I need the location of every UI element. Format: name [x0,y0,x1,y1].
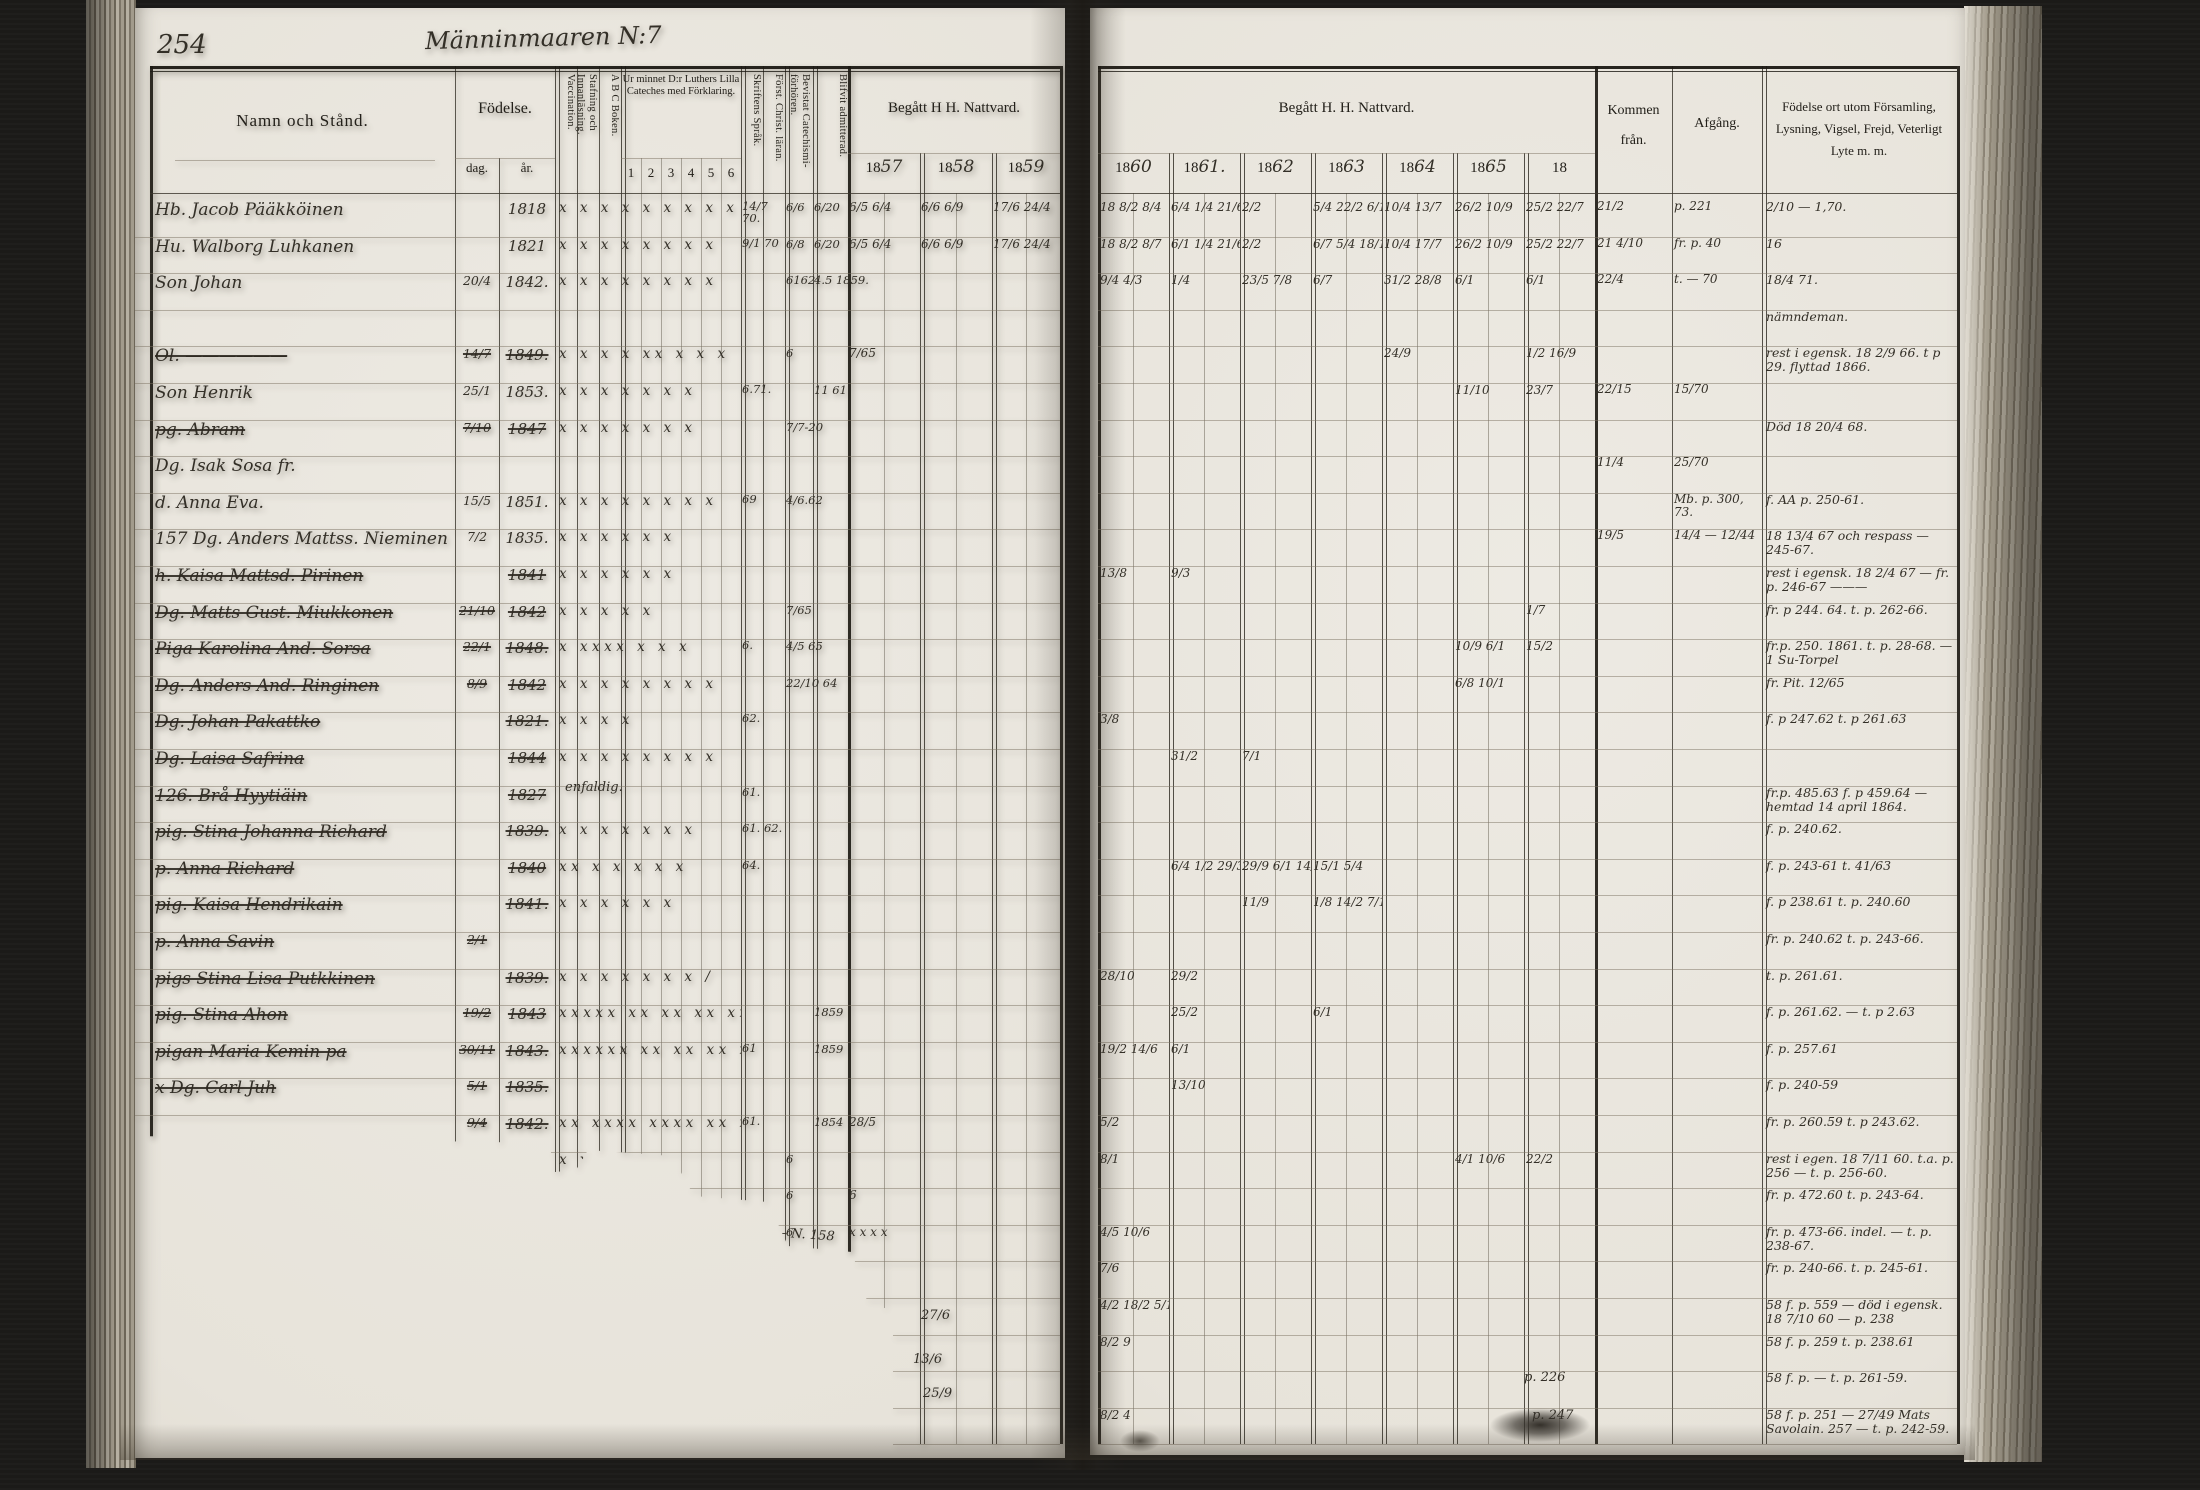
entry-check-marks: x x x x x x x x [559,676,741,692]
cateches-col-6: 6 [721,165,741,181]
col-header-blifvit-admitterad: Blifvit admitterad. [815,74,848,192]
register-row-right: 28/10 29/2 t. p. 261.61. [1090,969,1965,1006]
entry-birth-day: 2/1 [455,932,499,947]
entry-note: f. p. 240.62. [1766,822,1956,836]
year-written: 61. [1198,157,1225,177]
entry-name: 157 Dg. Anders Mattss. Nieminen ibf. [155,529,453,549]
entry-skriftens-mark: 6. [742,639,784,651]
entry-skriftens-mark: 64. [742,859,784,871]
year-printed: 18 [1552,160,1567,176]
entry-nattvard-1860: 19/2 14/6 [1100,1042,1169,1056]
cateches-col-4: 4 [681,165,701,181]
entry-check-marks: x x x x x x x x [559,493,741,509]
register-row-right: Mb. p. 300, 73. f. AA p. 250-61. [1090,493,1965,530]
year-18-blank: 18 [1524,157,1595,177]
year-1863: 1863 [1311,157,1382,177]
register-row-right: 19/2 14/6 6/1 f. p. 257.61 [1090,1042,1965,1079]
entry-check-marks: xx xxxx xxxx xx xxx [559,1115,741,1131]
col-header-nattvard-right: Begått H. H. Nattvard. [1098,100,1595,117]
entry-skriftens-mark: 62. [742,712,784,724]
col-header-fodelseort-notes: Födelse ort utom Församling, Lysning, Vi… [1764,96,1954,162]
entry-birth-day: 20/4 [455,273,499,288]
entry-afgang: 15/70 [1674,383,1760,396]
register-row: p. Anna Richard 1840 xx x x x x x 64. [135,859,1065,896]
entry-nattvard-1861: 6/1 1/4 21/6 [1171,237,1240,251]
entry-birth-day: 19/2 [455,1005,499,1020]
year-1864: 1864 [1382,157,1453,177]
entry-check-marks: x x x x x x x x [559,273,741,289]
register-row: pig. Stina Ahon 19/2 1843 xxxxx xx xx xx… [135,1005,1065,1042]
entry-nattvard-1861: 13/10 [1171,1078,1240,1092]
entry-nattvard-1862: 23/5 7/8 [1242,273,1311,287]
entry-nattvard-1860: 9/4 4/3 [1100,273,1169,287]
entry-nattvard-1861: 6/4 1/4 21/6 [1171,200,1240,214]
entry-kommen-fran: 22/15 [1597,383,1671,396]
entry-note: fr. p. 240.62 t. p. 243-66. [1766,932,1956,946]
entry-bevistat-mark: 6/6 [786,200,813,214]
entry-skriftens-mark: 61. 62. [742,822,784,834]
year-written: 62 [1272,157,1294,177]
entry-skriftens-mark: 9/1 70 [742,237,784,249]
entry-nattvard-1857: 7/65 [849,346,919,360]
left-page: 254 Männinmaaren N:7 Namn och Stånd. Föd… [135,8,1065,1458]
register-row-right: 8/1 4/1 10/6 22/2 rest i egen. 18 7/11 6… [1090,1152,1965,1189]
entry-birth-year: 1839. [499,969,555,987]
entry-name: pigan Maria Kemin pa [155,1042,453,1062]
entry-birth-year: 1853. [499,383,555,401]
entry-nattvard-1863: 6/7 5/4 18/10 [1313,237,1382,251]
entry-skriftens-mark: 14/7 70. [742,200,784,224]
year-written: 60 [1130,157,1152,177]
entry-nattvard-1862: 29/9 6/1 14/6 [1242,859,1311,873]
entry-birth-day: 25/1 [455,383,499,398]
entry-note: 58 f. p. 259 t. p. 238.61 [1766,1335,1956,1349]
register-row-right: 6/4 1/2 29/3 29/9 6/1 14/6 15/1 5/4 f. p… [1090,859,1965,896]
entry-nattvard-1859: 17/6 24/4 [993,237,1059,251]
entry-note: f. p. 243-61 t. 41/63 [1766,859,1956,873]
entry-birth-day: 8/9 [455,676,499,691]
entry-nattvard-1859: 17/6 24/4 [993,200,1059,214]
register-row: Hu. Walborg Luhkanen 1821 x x x x x x x … [135,237,1065,274]
register-row: pig. Kaisa Hendrikain 1841. x x x x x x [135,895,1065,932]
year-written: 63 [1343,157,1365,177]
col-header-bevistat-forhoren: Bevistat Catechismi-förhören. [783,74,811,192]
register-row: pigan Maria Kemin pa 30/11 1843. xxxxxx … [135,1042,1065,1079]
register-row: Dg. Johan Pakattko 1821. x x x x 62. [135,712,1065,749]
register-row: Ol. —————— 14/7 1849. x x x x xx x x x 6… [135,346,1065,383]
entry-nattvard-1858: 6/6 6/9 [921,200,991,214]
entry-birth-year: 1841. [499,895,555,913]
year-printed: 18 [1008,160,1023,176]
register-row: x Dg. Carl Juh 5/1 1835. [135,1078,1065,1115]
entry-birth-day: 9/4 [455,1115,499,1130]
entry-note: f. AA p. 250-61. [1766,493,1956,507]
register-row: Son Henrik 25/1 1853. x x x x x x x 6.71… [135,383,1065,420]
cateches-col-3: 3 [661,165,681,181]
page-number: 254 [157,30,207,60]
entry-nattvard-1860: 8/2 9 [1100,1335,1169,1349]
register-row: x x x x x 6 6 [135,1188,1065,1225]
entry-check-marks: x x x x [559,712,741,728]
entry-check-marks: x xxxx x x x [559,639,741,655]
entry-nattvard-1860: 8/1 [1100,1152,1169,1166]
entry-nattvard-1865: 10/9 6/1 [1455,639,1524,653]
register-row-right: f. p. 240.62. [1090,822,1965,859]
entry-nattvard-1860: 3/8 [1100,712,1169,726]
entry-kommen-fran: 21 4/10 [1597,237,1671,250]
year-1865: 1865 [1453,157,1524,177]
entry-name: pigs Stina Lisa Putkkinen [155,969,453,989]
entry-note: 16 [1766,237,1956,251]
register-row-right: 25/2 6/1 f. p. 261.62. — t. p 2.63 [1090,1005,1965,1042]
strip-date-3: 25/9 [923,1386,952,1401]
entry-admitted: 1859 [814,1042,848,1056]
entry-bevistat-mark: 6 [786,1152,813,1166]
entry-admitted: 11 61 [814,383,848,397]
entry-afgang: 14/4 — 12/44 [1674,529,1760,542]
entry-note: fr. p 244. 64. t. p. 262-66. [1766,603,1956,617]
entry-note: fr.p. 485.63 f. p 459.64 — hemtad 14 apr… [1766,786,1956,814]
entry-nattvard-1857: 6/5 6/4 [849,200,919,214]
entry-birth-year: 1839. [499,822,555,840]
entry-bevistat-mark: 4/5 65 [786,639,813,653]
entry-name: Ol. —————— [155,346,453,366]
entry-bevistat-mark: 6 [786,346,813,360]
col-header-abc-boken: A B C Boken. [598,74,620,192]
register-row: p. Anna Savin 2/1 [135,932,1065,969]
register-row [135,1408,1065,1445]
entry-birth-year: 1842 [499,603,555,621]
entry-birth-day: 14/7 [455,346,499,361]
entry-bevistat-mark: 22/10 64 [786,676,813,690]
entry-nattvard-1865: 11/10 [1455,383,1524,397]
col-header-namn: Namn och Stånd. [150,111,455,131]
register-row-right: nämndeman. [1090,310,1965,347]
entry-birth-year: 1840 [499,859,555,877]
register-row: pigs Stina Lisa Putkkinen 1839. x x x x … [135,969,1065,1006]
entry-name: pig. Kaisa Hendrikain [155,895,453,915]
grid-line [175,160,435,161]
torn-page-wrap: 254 Männinmaaren N:7 Namn och Stånd. Föd… [135,8,1065,1458]
register-row-right: 13/10 f. p. 240-59 [1090,1078,1965,1115]
entry-birth-day: 5/1 [455,1078,499,1093]
entry-note: fr. p. 473-66. indel. — t. p. 238-67. [1766,1225,1956,1253]
entry-note: f. p 247.62 t. p 261.63 [1766,712,1956,726]
entry-note: rest i egensk. 18 2/9 66. t p 29. flytta… [1766,346,1956,374]
entry-birth-day: 7/2 [455,529,499,544]
register-row: pg. Abram 7/10 1847 x x x x x x x 7/7-20 [135,420,1065,457]
entry-nattvard-18: 1/7 [1526,603,1595,617]
entry-name: 126. Brå Hyytiäin [155,786,453,806]
entry-nattvard-1858: 6/6 6/9 [921,237,991,251]
entry-nattvard-1861: 6/1 [1171,1042,1240,1056]
grid-line [150,71,1060,72]
col-header-vaccination: Vaccination. [554,74,576,192]
year-1861: 1861. [1169,157,1240,177]
entry-birth-day: 30/11 [455,1042,499,1057]
entry-check-marks: x x x x x x x [559,822,741,838]
entry-admitted: 1859 [814,1005,848,1019]
entry-note: fr. p. 240-66. t. p. 245-61. [1766,1261,1956,1275]
left-page-table: 254 Männinmaaren N:7 Namn och Stånd. Föd… [135,8,1065,1458]
entry-name: Dg. Anders And. Ringinen [155,676,453,696]
register-row-right: fr. p. 472.60 t. p. 243-64. [1090,1188,1965,1225]
entry-nattvard-1863: 6/1 [1313,1005,1382,1019]
entry-check-marks: x x x x x x x / [559,969,741,985]
entry-birth-year: 1821. [499,712,555,730]
entry-nattvard-1860: 4/2 18/2 5/1 [1100,1298,1169,1312]
col-header-dag: dag. [455,160,499,176]
col-header-cateches: Ur minnet D:r Luthers Lilla Cateches med… [621,74,741,98]
register-row-right: 9/4 4/3 1/4 23/5 7/8 6/7 31/2 28/8 6/1 6… [1090,273,1965,310]
register-row-right: 4/5 10/6 fr. p. 473-66. indel. — t. p. 2… [1090,1225,1965,1262]
register-row-right: 4/2 18/2 5/1 58 f. p. 559 — död i egensk… [1090,1298,1965,1335]
register-row-right: 8/2 4 58 f. p. 251 — 27/49 Mats Savolain… [1090,1408,1965,1445]
entry-check-marks: x x x x xx x x x [559,346,741,362]
entry-nattvard-18: 6/1 [1526,273,1595,287]
entry-name: pig. Stina Johanna Richard [155,822,453,842]
entry-nattvard-1860: 18 8/2 8/4 [1100,200,1169,214]
register-row: 6 x x x x [135,1225,1065,1262]
entry-nattvard-1864: 10/4 17/7 [1384,237,1453,251]
entry-nattvard-1864: 10/4 13/7 [1384,200,1453,214]
entry-birth-day: 22/1 [455,639,499,654]
entry-nattvard-1865: 26/2 10/9 [1455,200,1524,214]
entry-nattvard-1862: 7/1 [1242,749,1311,763]
entry-check-marks: x x x x x x x x x [559,200,741,216]
entry-kommen-fran: 21/2 [1597,200,1671,213]
grid-line [1098,193,1957,194]
entry-birth-year: 1835. [499,529,555,547]
entry-nattvard-1865: 4/1 10/6 [1455,1152,1524,1166]
entry-nattvard-1857: 6 [849,1188,919,1202]
entry-nattvard-1863: 1/8 14/2 7/1 [1313,895,1382,909]
col-header-forst-christ-laran: Först. Christ. läran. [762,74,784,192]
entry-check-marks: x x x x x x x [559,420,741,436]
entry-nattvard-1865: 6/1 [1455,273,1524,287]
year-written: 64 [1414,157,1436,177]
cateches-col-5: 5 [701,165,721,181]
entry-name: pg. Abram [155,420,453,440]
entry-nattvard-1861: 6/4 1/2 29/3 [1171,859,1240,873]
entry-check-marks: xx x x x x x [559,859,741,875]
entry-nattvard-1860: 4/5 10/6 [1100,1225,1169,1239]
entry-check-marks: x x x x x x x [559,383,741,399]
entry-nattvard-1864: 24/9 [1384,346,1453,360]
entry-birth-year: 1835. [499,1078,555,1096]
entry-note: fr.p. 250. 1861. t. p. 28-68. — 1 Su-Tor… [1766,639,1956,667]
col-header-stafning: Stafning och Innanläsning. [576,74,598,192]
entry-nattvard-1860: 28/10 [1100,969,1169,983]
register-row: Piga Karolina And. Sorsa 22/1 1848. x xx… [135,639,1065,676]
register-row-right: 3/8 f. p 247.62 t. p 261.63 [1090,712,1965,749]
grid-line [1098,71,1957,72]
entry-name: Son Henrik [155,383,453,403]
entry-afgang: 25/70 [1674,456,1760,469]
entry-check-marks: x x x x x x [559,566,741,582]
entry-admitted: 4.5 1859. [814,273,848,287]
entry-note: f. p. 261.62. — t. p 2.63 [1766,1005,1956,1019]
register-row: pig. Stina Johanna Richard 1839. x x x x… [135,822,1065,859]
book-edge-left [86,0,136,1468]
year-1859: 1859 [992,157,1060,177]
register-row-right: 7/6 fr. p. 240-66. t. p. 245-61. [1090,1261,1965,1298]
register-row: 157 Dg. Anders Mattss. Nieminen ibf. 7/2… [135,529,1065,566]
entry-admitted: 6/20 [814,237,848,251]
year-1858: 1858 [920,157,992,177]
entry-bevistat-mark: 6 [786,1188,813,1202]
entry-note: rest i egensk. 18 2/4 67 — fr. p. 246-67… [1766,566,1956,594]
year-printed: 18 [1183,160,1198,176]
right-page: Begått H. H. Nattvard. 1860 1861. 1862 1… [1090,8,1965,1455]
register-row-right: 13/8 9/3 rest i egensk. 18 2/4 67 — fr. … [1090,566,1965,603]
entry-birth-year: 1827 [499,786,555,804]
entry-nattvard-1863: 5/4 22/2 6/1 [1313,200,1382,214]
register-row: Dg. Matts Gust. Miukkonen 21/10 1842 x x… [135,603,1065,640]
entry-admitted: 1854 [814,1115,848,1129]
entry-birth-day: 21/10 [455,603,499,618]
entry-nattvard-1862: 2/2 [1242,200,1311,214]
entry-nattvard-18: 25/2 22/7 [1526,200,1595,214]
entry-name: Dg. Isak Sosa fr. [155,456,453,476]
entry-name: Dg. Laisa Safrina [155,749,453,769]
register-row: 9/4 1842. xx xxxx xxxx xx xxx 61. 1854 2… [135,1115,1065,1152]
entry-name: Dg. Matts Gust. Miukkonen [155,603,453,623]
grid-line [1098,153,1595,154]
entry-nattvard-1865: 6/8 10/1 [1455,676,1524,690]
entry-check-marks: x x x x x x x x [559,749,741,765]
book-edge-right [1964,6,2042,1462]
register-row-right: fr. p. 240.62 t. p. 243-66. [1090,932,1965,969]
entry-name: Son Johan [155,273,453,293]
col-header-kommen-fran: Kommen från. [1595,96,1672,156]
entry-nattvard-1861: 9/3 [1171,566,1240,580]
register-row: Hb. Jacob Pääkköinen 1818 x x x x x x x … [135,200,1065,237]
entry-name: Hb. Jacob Pääkköinen [155,200,453,220]
entry-nattvard-1864: 31/2 28/8 [1384,273,1453,287]
entry-check-marks: x x x x x x [559,1152,741,1168]
strip-date-1: 27/6 [921,1308,950,1323]
cateches-col-1: 1 [621,165,641,181]
entry-nattvard-1863: 15/1 5/4 [1313,859,1382,873]
entry-bevistat-mark: 7/65 [786,603,813,617]
year-1860: 1860 [1098,157,1169,177]
year-written: 58 [953,157,975,177]
entry-nattvard-1857: 6/5 6/4 [849,237,919,251]
year-printed: 18 [1257,160,1272,176]
col-header-afgang: Afgång. [1672,116,1762,132]
grid-line [1098,66,1957,69]
register-row-right: 1/7 fr. p 244. 64. t. p. 262-66. [1090,603,1965,640]
entry-nattvard-1860: 8/2 4 [1100,1408,1169,1422]
entry-bevistat-mark: 6/8 [786,237,813,251]
entry-birth-day: 7/10 [455,420,499,435]
entry-birth-year: 1821 [499,237,555,255]
year-printed: 18 [938,160,953,176]
entry-nattvard-1860: 5/2 [1100,1115,1169,1129]
entry-birth-year: 1848. [499,639,555,657]
year-1862: 1862 [1240,157,1311,177]
entry-birth-year: 1851. [499,493,555,511]
register-row [135,310,1065,347]
entry-check-marks: x x x x x [559,1188,741,1204]
entry-afgang: p. 221 [1674,200,1760,213]
entry-birth-year: 1844 [499,749,555,767]
scanned-church-register: 254 Männinmaaren N:7 Namn och Stånd. Föd… [0,0,2200,1490]
entry-kommen-fran: 11/4 [1597,456,1671,469]
entry-birth-year: 1842 [499,676,555,694]
entry-nattvard-1860: 18 8/2 8/7 [1100,237,1169,251]
entry-nattvard-1863: 6/7 [1313,273,1382,287]
entry-note: nämndeman. [1766,310,1956,324]
register-row-right: Död 18 20/4 68. [1090,420,1965,457]
entry-nattvard-1861: 31/2 [1171,749,1240,763]
entry-name: h. Kaisa Mattsd. Pirinen [155,566,453,586]
entry-admitted: 6/20 [814,200,848,214]
entry-birth-day: 15/5 [455,493,499,508]
register-row-right: 31/2 7/1 [1090,749,1965,786]
entry-birth-year: 1843. [499,1042,555,1060]
register-row: Dg. Anders And. Ringinen 8/9 1842 x x x … [135,676,1065,713]
entry-nattvard-18: 25/2 22/7 [1526,237,1595,251]
entry-afgang: Mb. p. 300, 73. [1674,493,1760,519]
entry-check-marks: x x x x x x [559,895,741,911]
grid-line [621,158,741,159]
entry-note: 58 f. p. 251 — 27/49 Mats Savolain. 257 … [1766,1408,1956,1436]
entry-note: 58 f. p. — t. p. 261-59. [1766,1371,1956,1385]
entry-note: 18 13/4 67 och respass — 245-67. [1766,529,1956,557]
year-written: 65 [1485,157,1507,177]
entry-nattvard-1857: 28/5 [849,1115,919,1129]
grid-line [150,193,1060,194]
register-row: Dg. Isak Sosa fr. [135,456,1065,493]
entry-birth-year: 1818 [499,200,555,218]
entry-nattvard-18: 15/2 [1526,639,1595,653]
entry-nattvard-1861: 1/4 [1171,273,1240,287]
entry-birth-year: 1847 [499,420,555,438]
entry-nattvard-1860: 13/8 [1100,566,1169,580]
col-header-fodelse: Födelse. [455,100,555,118]
register-row [135,1261,1065,1298]
note-enfaldig: enfaldig. [565,780,623,795]
strip-date-2: 13/6 [913,1352,942,1367]
entry-note: rest i egen. 18 7/11 60. t.a. p. 256 — t… [1766,1152,1956,1180]
entry-skriftens-mark: 61. [742,1115,784,1127]
entry-note: f. p. 240-59 [1766,1078,1956,1092]
entry-afgang: fr. p. 40 [1674,237,1760,250]
register-row: Son Johan 20/4 1842. x x x x x x x x 616… [135,273,1065,310]
register-row: h. Kaisa Mattsd. Pirinen 1841 x x x x x … [135,566,1065,603]
register-row-right: 8/2 9 58 f. p. 259 t. p. 238.61 [1090,1335,1965,1372]
register-row-right: 19/5 14/4 — 12/44 18 13/4 67 och respass… [1090,529,1965,566]
entry-nattvard-18: 23/7 [1526,383,1595,397]
entry-name: Hu. Walborg Luhkanen [155,237,453,257]
entry-check-marks: xxxxxx xx xx xx xx x [559,1042,741,1058]
year-1857: 1857 [848,157,920,177]
entry-kommen-fran: 19/5 [1597,529,1671,542]
register-row-right: 5/2 fr. p. 260.59 t. p 243.62. [1090,1115,1965,1152]
year-written: 57 [881,157,903,177]
entry-name: pig. Stina Ahon [155,1005,453,1025]
register-row-right: 10/9 6/1 15/2 fr.p. 250. 1861. t. p. 28-… [1090,639,1965,676]
register-row-right: 11/9 1/8 14/2 7/1 f. p 238.61 t. p. 240.… [1090,895,1965,932]
register-row: x x x x x x 6 [135,1152,1065,1189]
register-row-right: 6/8 10/1 fr. Pit. 12/65 [1090,676,1965,713]
entry-check-marks: xxxxx xx xx xx xx xxx [559,1005,741,1021]
entry-name: p. Anna Savin [155,932,453,952]
entry-note: 18/4 71. [1766,273,1956,287]
entry-skriftens-mark: 6.71. [742,383,784,395]
